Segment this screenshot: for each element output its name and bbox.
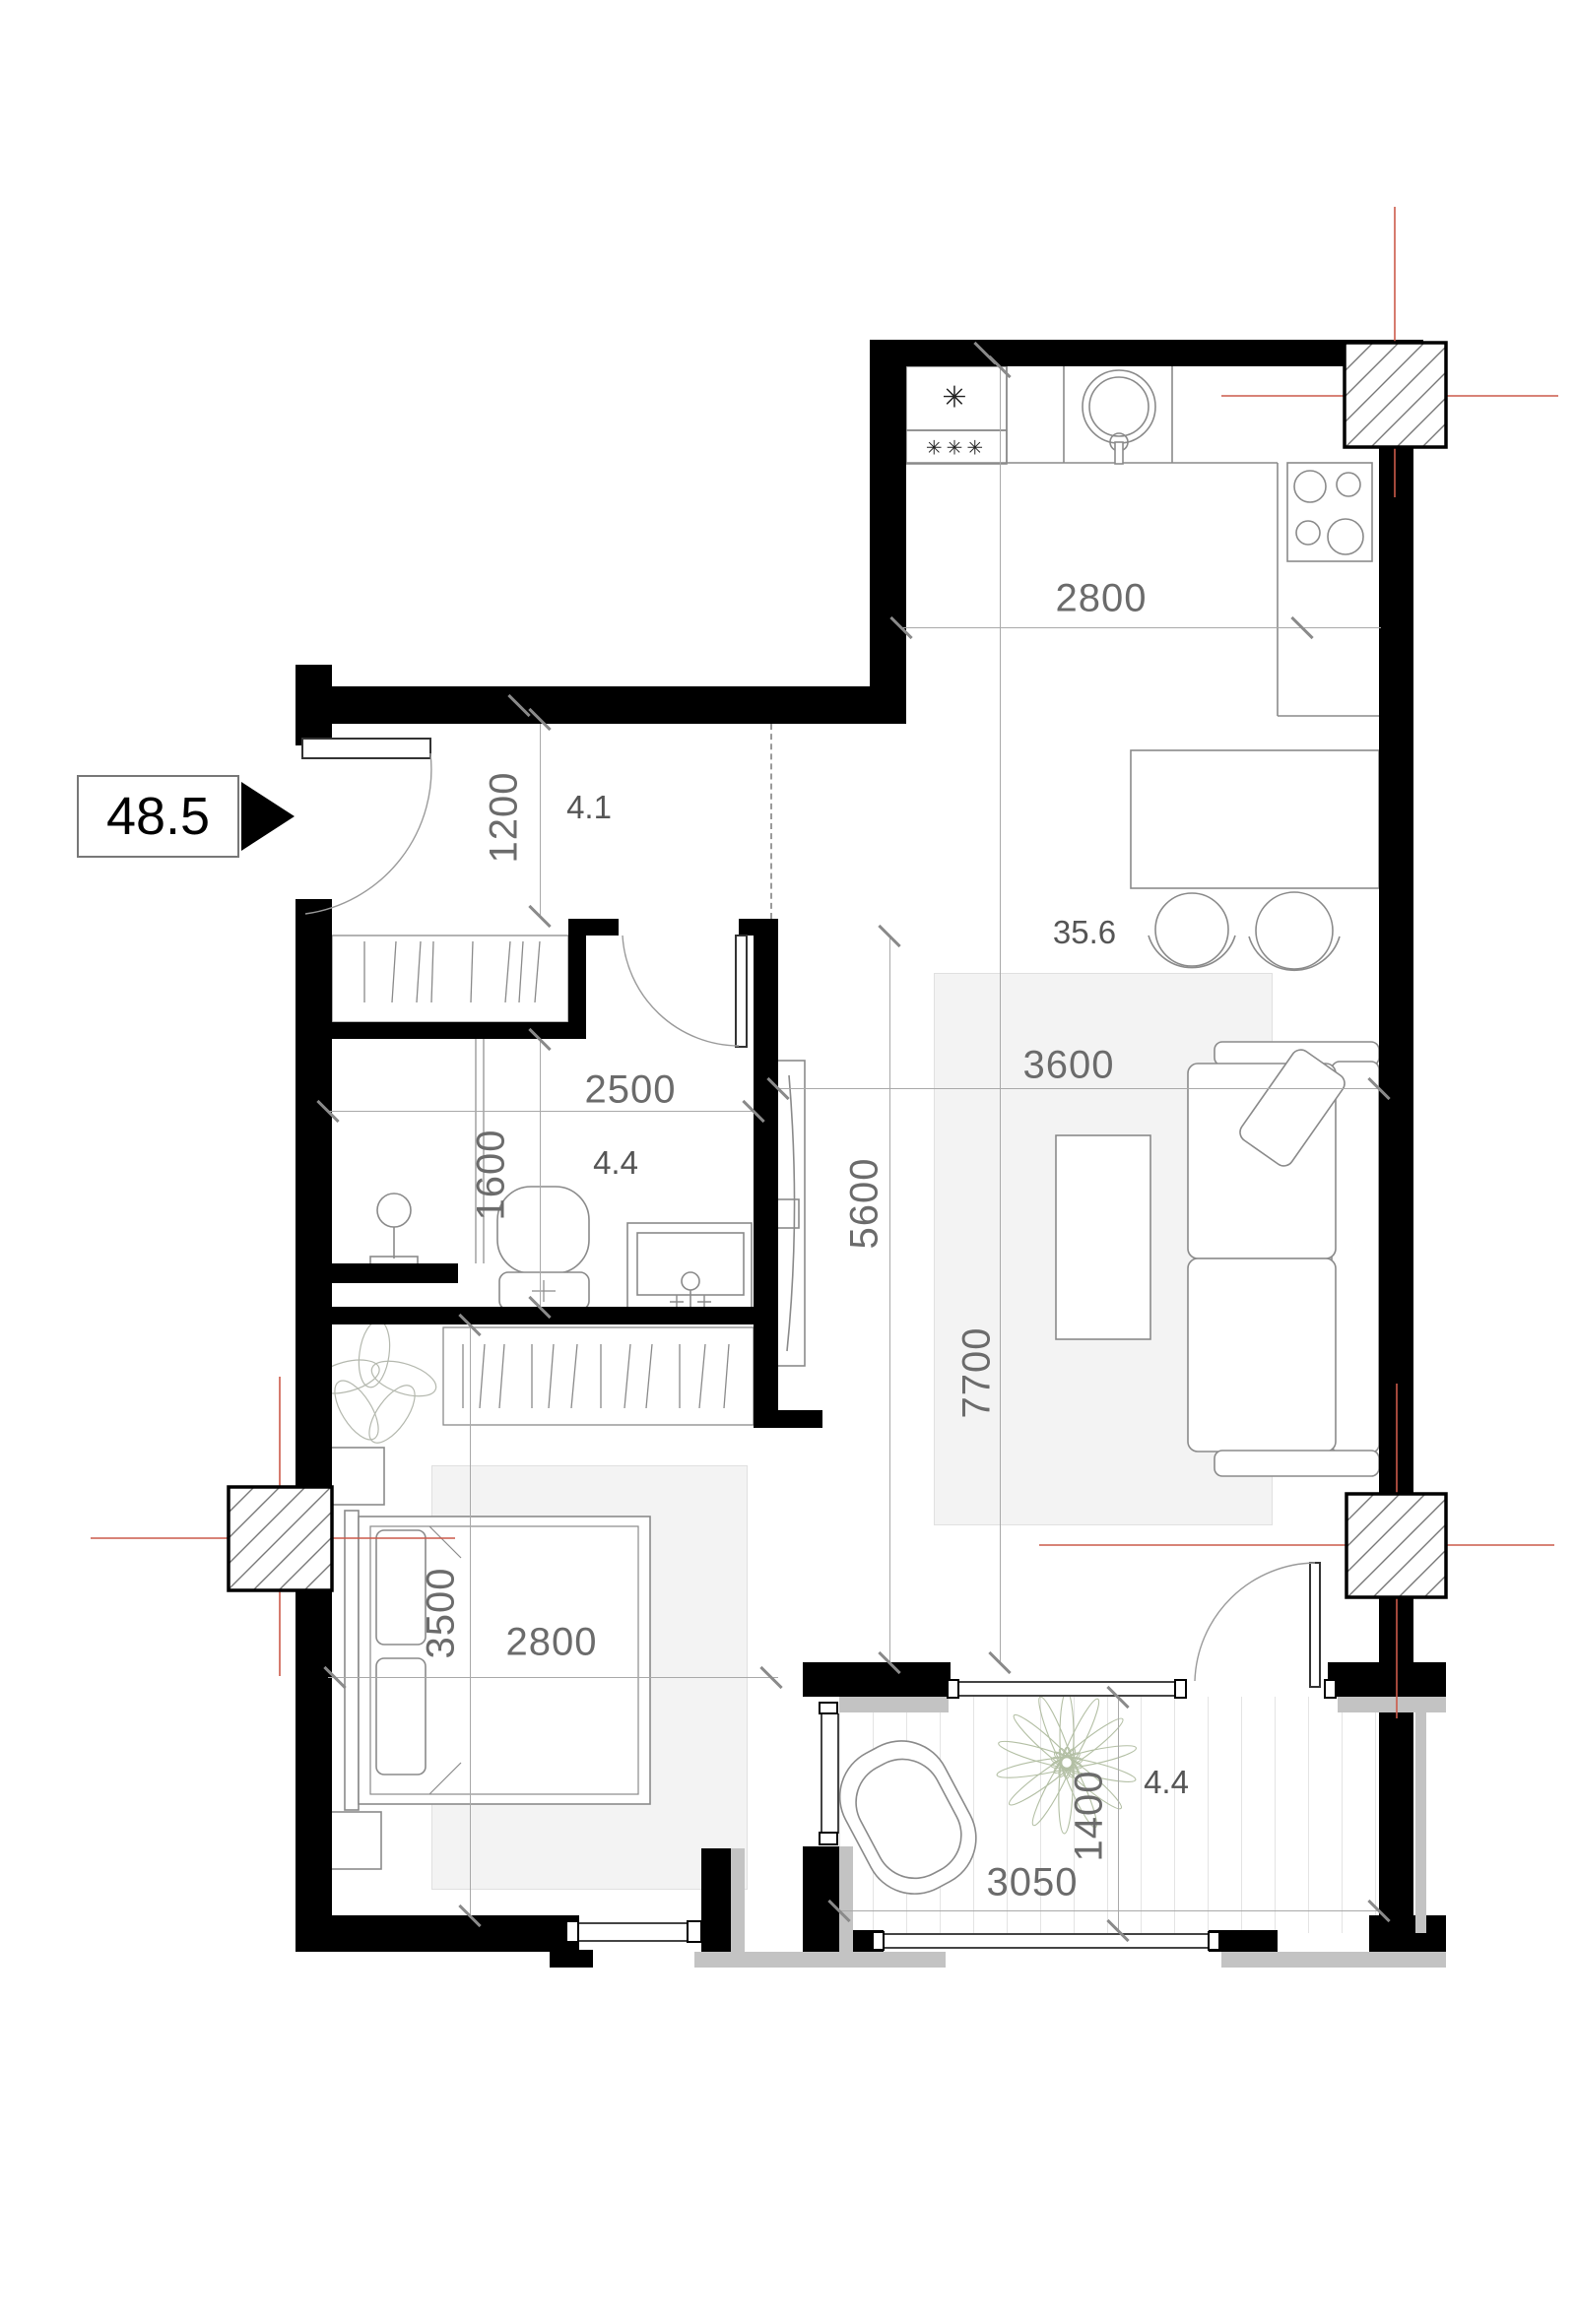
- dim-kitchen-width: 2800: [1056, 577, 1148, 621]
- dim-bedroom-width: 2800: [506, 1621, 598, 1665]
- bathroom-door: [623, 936, 747, 1047]
- column-mid-right: [1346, 1494, 1446, 1597]
- dim-balcony-depth: 1400: [1068, 1771, 1112, 1862]
- fridge-symbol: ✳: [942, 381, 970, 416]
- living-area-label: 35.6: [1053, 914, 1116, 951]
- entrance-door: [302, 739, 431, 914]
- total-area-badge: 48.5: [77, 775, 239, 858]
- balcony-door: [1195, 1563, 1320, 1687]
- hall-area-label: 4.1: [566, 789, 612, 826]
- area-arrow-icon: [241, 782, 295, 851]
- dim-bath-depth: 1600: [470, 1130, 514, 1221]
- dim-bath-width: 2500: [585, 1068, 677, 1113]
- column-top-right: [1345, 343, 1446, 447]
- dim-hall-depth: 1200: [483, 772, 527, 864]
- dim-left-zone: 5600: [843, 1158, 887, 1250]
- dim-living-depth: 7700: [955, 1327, 1000, 1419]
- dim-bedroom-depth: 3500: [420, 1568, 464, 1659]
- structure-layer: [0, 0, 1576, 2324]
- dim-balcony-width: 3050: [987, 1861, 1079, 1905]
- balcony-area-label: 4.4: [1144, 1764, 1189, 1801]
- freezer-symbol: ✳✳✳: [926, 436, 987, 461]
- bathroom-area-label: 4.4: [593, 1144, 638, 1182]
- dim-living-width: 3600: [1023, 1044, 1115, 1088]
- floor-plan: 48.5 ✳ ✳✳✳ 2800 1200 4.1 2500 4.4 1600 5…: [0, 0, 1576, 2324]
- column-mid-left: [229, 1487, 332, 1590]
